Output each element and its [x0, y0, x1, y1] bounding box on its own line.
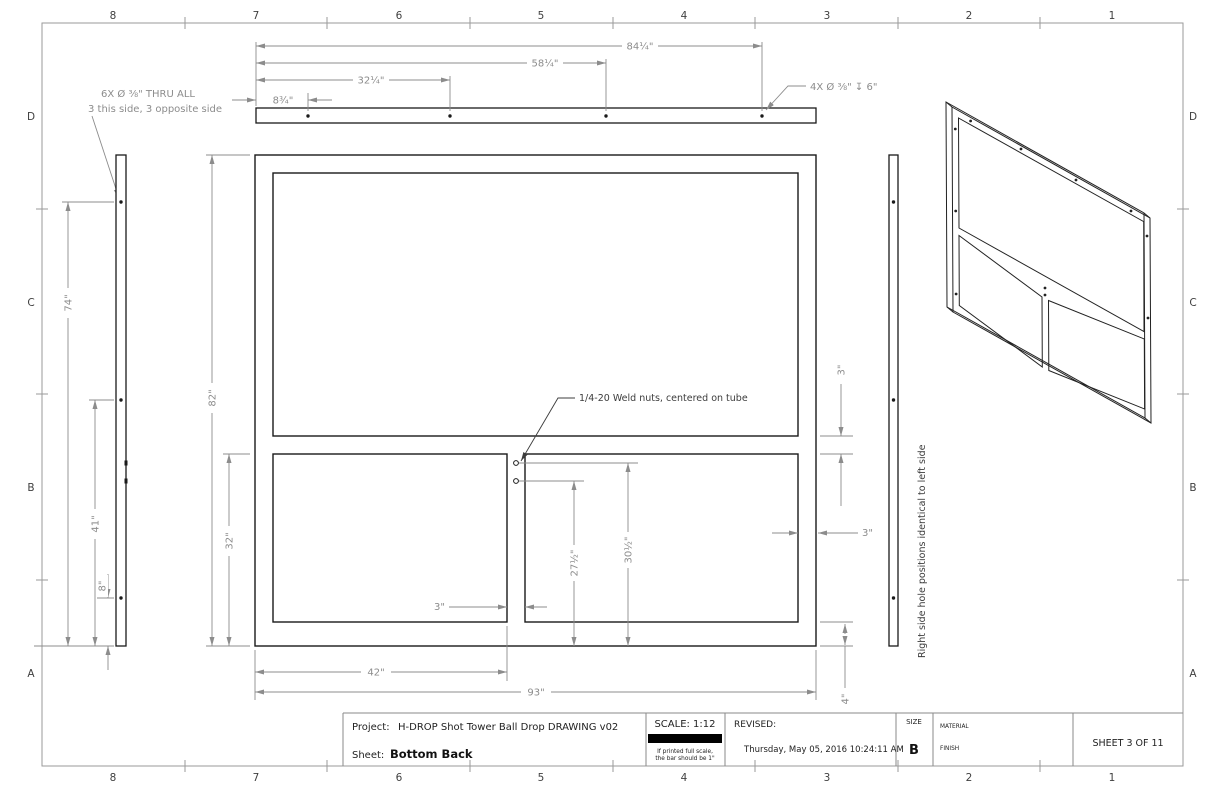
- zone-col-bottom: 3: [824, 772, 831, 784]
- dim-93: 93": [527, 688, 544, 699]
- zone-col-bottom: 5: [538, 772, 545, 784]
- dim-4: 4": [841, 694, 852, 705]
- project-label: Project:: [352, 722, 390, 733]
- left-side-view: 74" 41" 8": [34, 155, 128, 670]
- thru-holes-note: 3 this side, 3 opposite side: [88, 104, 222, 115]
- zone-col-top: 2: [966, 10, 973, 22]
- top-view: 84¼" 58¼" 32¼" 8¾" 4X Ø ⅜" ↧ 6": [232, 40, 877, 123]
- dim-32: 32": [225, 532, 236, 549]
- zone-col-top: 8: [110, 10, 117, 22]
- sheet-label: Sheet:: [352, 750, 384, 761]
- drawing-canvas: 8 7 6 5 4 3 2 1 8 7 6 5 4 3 2 1 D C B A …: [0, 0, 1224, 792]
- zone-row-right: D: [1189, 111, 1197, 123]
- size-label: SIZE: [906, 718, 922, 726]
- scale-label: SCALE: 1:12: [654, 719, 715, 730]
- zone-row-left: D: [27, 111, 35, 123]
- dim-member-3: 3": [862, 528, 873, 539]
- right-side-view: Right side hole positions identical to l…: [889, 155, 928, 658]
- scale-bar: [648, 734, 722, 743]
- revised-value: Thursday, May 05, 2016 10:24:11 AM: [743, 745, 904, 755]
- zone-col-top: 6: [396, 10, 403, 22]
- revised-label: REVISED:: [734, 720, 776, 730]
- thru-holes-callout: 6X Ø ⅜" THRU ALL 3 this side, 3 opposite…: [88, 88, 222, 198]
- isometric-hole-dots: [954, 120, 1150, 320]
- weld-nuts-callout: 1/4-20 Weld nuts, centered on tube: [579, 393, 748, 404]
- zone-col-top: 1: [1109, 10, 1116, 22]
- sheet-name: Bottom Back: [390, 747, 473, 761]
- dim-rail-3: 3": [837, 365, 848, 376]
- drawing-sheet: 8 7 6 5 4 3 2 1 8 7 6 5 4 3 2 1 D C B A …: [0, 0, 1224, 792]
- zone-col-bottom: 4: [681, 772, 688, 784]
- zone-row-right: C: [1189, 297, 1196, 309]
- dim-32-quarter: 32¼": [357, 75, 384, 87]
- zone-row-right: B: [1189, 482, 1196, 494]
- zone-col-top: 3: [824, 10, 831, 22]
- dim-58-quarter: 58¼": [531, 58, 558, 70]
- dim-27-half: 27½": [569, 549, 581, 576]
- dim-divider-3: 3": [434, 602, 445, 613]
- title-block: Project: H-DROP Shot Tower Ball Drop DRA…: [343, 713, 1183, 766]
- zone-row-left: C: [27, 297, 34, 309]
- finish-label: FINISH: [940, 746, 959, 752]
- thru-holes-text: 6X Ø ⅜" THRU ALL: [101, 88, 195, 100]
- zone-col-top: 7: [253, 10, 260, 22]
- zone-col-bottom: 1: [1109, 772, 1116, 784]
- project-value: H-DROP Shot Tower Ball Drop DRAWING v02: [398, 722, 618, 733]
- dim-74: 74": [64, 294, 75, 311]
- dim-8-three-quarter: 8¾": [273, 96, 294, 107]
- dim-30-half: 30½": [623, 536, 635, 563]
- dim-84-quarter: 84¼": [626, 41, 653, 53]
- counterbore-callout: 4X Ø ⅜" ↧ 6": [810, 81, 877, 93]
- scale-note-2: the bar should be 1": [655, 756, 715, 762]
- isometric-view: [946, 102, 1151, 423]
- zone-row-left: B: [27, 482, 34, 494]
- material-label: MATERIAL: [940, 724, 969, 730]
- zone-col-bottom: 7: [253, 772, 260, 784]
- zone-row-right: A: [1189, 668, 1197, 680]
- dim-42: 42": [367, 668, 384, 679]
- sheet-of: SHEET 3 OF 11: [1092, 738, 1163, 749]
- zone-col-bottom: 8: [110, 772, 117, 784]
- right-side-note: Right side hole positions identical to l…: [917, 444, 928, 658]
- scale-note-1: If printed full scale,: [657, 749, 713, 755]
- zone-col-bottom: 2: [966, 772, 973, 784]
- dim-8: 8": [98, 581, 109, 592]
- dim-41: 41": [91, 515, 102, 532]
- size-value: B: [909, 743, 919, 758]
- dim-82: 82": [208, 389, 219, 406]
- zone-col-top: 5: [538, 10, 545, 22]
- zone-row-left: A: [27, 668, 35, 680]
- zone-col-bottom: 6: [396, 772, 403, 784]
- zone-col-top: 4: [681, 10, 688, 22]
- front-view: 82" 32" 42" 93" 3" 27½" 30½" 3" 3" 4" 1/…: [206, 155, 873, 704]
